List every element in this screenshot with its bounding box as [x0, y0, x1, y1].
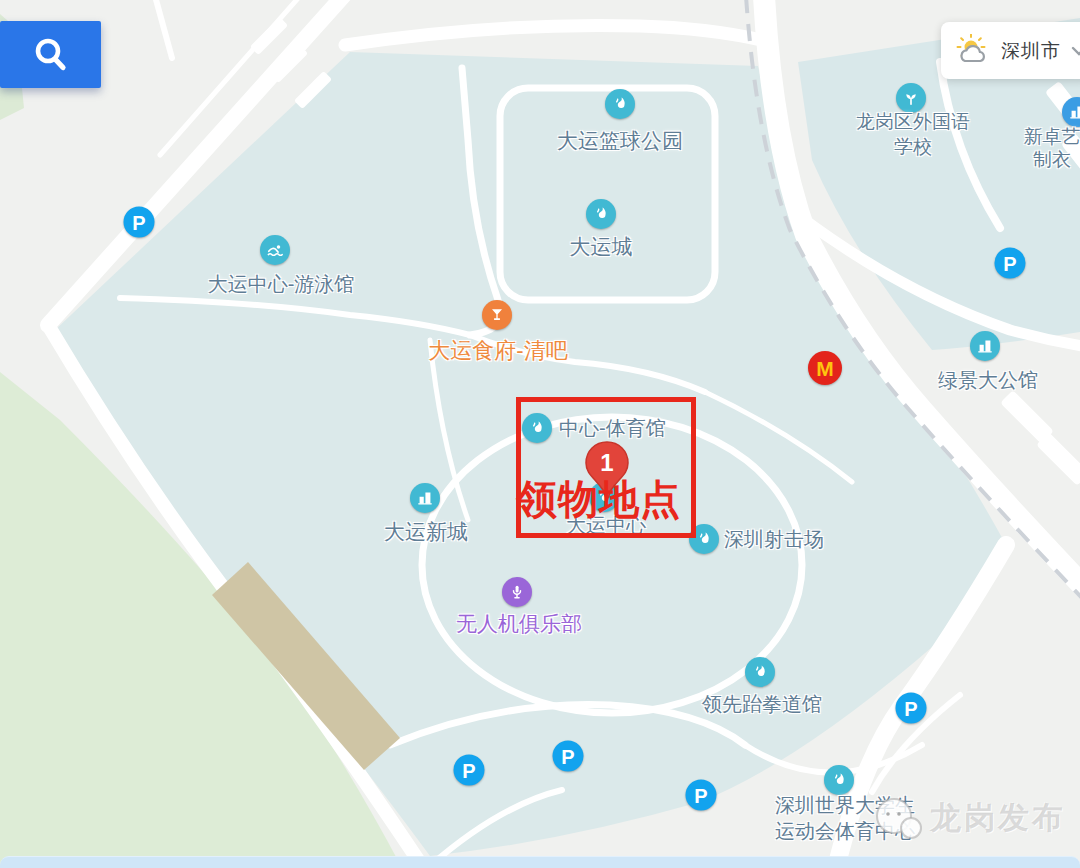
watermark-text: 龙岗发布: [930, 797, 1066, 839]
poi-mcdonalds-icon[interactable]: M: [808, 351, 842, 385]
parking-icon-5[interactable]: P: [553, 741, 584, 772]
poi-lingxian-taekwondo-hall-label[interactable]: 领先跆拳道馆: [702, 691, 822, 718]
poi-lingxian-taekwondo-hall-icon[interactable]: [745, 657, 775, 687]
bottom-sheet-edge[interactable]: [0, 856, 1080, 868]
weather-city-label: 深圳市: [1001, 38, 1061, 64]
watermark-logo-icon: [868, 792, 930, 844]
poi-xinzhuoyi-garment-label[interactable]: 新卓艺制衣: [1024, 125, 1080, 171]
poi-dayun-center-swimming-hall-label[interactable]: 大运中心-游泳馆: [208, 271, 355, 298]
parking-icon-1[interactable]: P: [124, 207, 155, 238]
parking-icon-6[interactable]: P: [686, 780, 717, 811]
poi-dayun-new-town-icon[interactable]: [410, 483, 440, 513]
poi-dayun-city-label[interactable]: 大运城: [570, 233, 633, 261]
poi-dayun-new-town-label[interactable]: 大运新城: [384, 518, 468, 546]
poi-dayun-basketball-park-label[interactable]: 大运篮球公园: [557, 127, 683, 155]
poi-dayun-restaurant-bar-icon[interactable]: [482, 300, 512, 330]
parking-icon-4[interactable]: P: [454, 755, 485, 786]
mcdonalds-m-icon: M: [816, 358, 834, 379]
poi-shenzhen-shooting-range-label[interactable]: 深圳射击场: [724, 526, 824, 553]
poi-dayun-basketball-park-icon[interactable]: [605, 89, 635, 119]
poi-longgang-foreign-language-school-label[interactable]: 龙岗区外国语学校: [856, 109, 970, 159]
poi-universiade-sports-center-icon[interactable]: [824, 765, 854, 795]
chevron-down-icon: [1071, 46, 1080, 56]
longgang-release-watermark: 龙岗发布: [868, 792, 1066, 844]
poi-dayun-center-swimming-hall-icon[interactable]: [260, 235, 290, 265]
poi-drone-club-label[interactable]: 无人机俱乐部: [456, 610, 582, 638]
poi-lvjing-grand-mansion-icon[interactable]: [970, 331, 1000, 361]
poi-lvjing-grand-mansion-label[interactable]: 绿景大公馆: [938, 367, 1038, 394]
parking-icon-2[interactable]: P: [995, 248, 1026, 279]
search-icon: [31, 35, 71, 75]
search-button[interactable]: [0, 21, 101, 88]
poi-xinzhuoyi-garment-icon[interactable]: [1062, 97, 1080, 127]
pickup-location-annotation-text: 领物地点: [517, 472, 681, 527]
sun-behind-cloud-icon: [955, 34, 993, 68]
map-app-screen: 大运路黄阁路16号线(龙坪线)(在建)8栋金大运 大运篮球公园大运城龙岗区外国语…: [0, 0, 1080, 868]
poi-dayun-city-icon[interactable]: [586, 199, 616, 229]
weather-widget[interactable]: 深圳市: [941, 22, 1080, 79]
poi-drone-club-icon[interactable]: [502, 577, 532, 607]
poi-dayun-restaurant-bar-label[interactable]: 大运食府-清吧: [428, 336, 567, 366]
parking-icon-3[interactable]: P: [896, 693, 927, 724]
